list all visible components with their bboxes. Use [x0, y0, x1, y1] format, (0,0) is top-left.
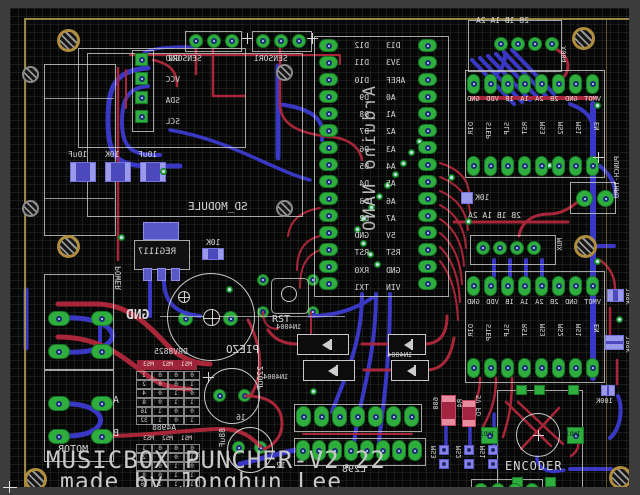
- resistor-value-label: 680: [433, 397, 440, 423]
- pad[interactable]: [467, 156, 480, 176]
- smd-resistor[interactable]: [202, 248, 224, 260]
- driver-pin-label: 1B: [505, 298, 513, 306]
- smd-resistor[interactable]: [461, 192, 473, 204]
- sensor1-pads[interactable]: [256, 34, 306, 48]
- pad[interactable]: [552, 276, 565, 296]
- table-cell: 0: [152, 398, 168, 407]
- pad[interactable]: [484, 276, 497, 296]
- pullup-value-label: 10K: [475, 194, 489, 202]
- nano-pin-label: A3: [386, 145, 414, 154]
- nano-pin-label: D10: [347, 76, 369, 85]
- driver-pin-label: DIR: [467, 122, 475, 154]
- gnd-label: GND: [126, 309, 149, 322]
- pad[interactable]: [467, 358, 480, 378]
- i2c-pin-label: VCC: [152, 75, 180, 84]
- nano-pin-label: D13: [386, 41, 414, 50]
- power-label: POWER: [115, 266, 123, 308]
- origin-cross-icon: [533, 430, 544, 441]
- driver1-output-labels: 2B 1B 1A 2A: [476, 17, 529, 25]
- nano-right-pin-labels: D133V3AREFA0A1A2A3A4A5A6A75VRSTGNDVIN: [386, 41, 414, 292]
- cap-value-label: 10uF: [68, 151, 87, 159]
- canvas-origin-cross-icon: [3, 481, 17, 493]
- pad[interactable]: [501, 276, 514, 296]
- driver2-logic-pads[interactable]: [467, 358, 599, 378]
- driver-pin-label: VMOT: [584, 298, 601, 306]
- nano-pin-label: A7: [386, 214, 414, 223]
- pad[interactable]: [552, 156, 565, 176]
- nano-pin-label: D12: [347, 41, 369, 50]
- driver-pin-label: SLP: [503, 324, 511, 356]
- pad[interactable]: [586, 358, 599, 378]
- origin-cross-icon: [593, 152, 604, 163]
- table-cell: 1: [184, 380, 200, 389]
- nano-left-pads[interactable]: [319, 39, 338, 290]
- pad[interactable]: [527, 241, 541, 255]
- pad[interactable]: [319, 39, 338, 52]
- pad[interactable]: [319, 56, 338, 69]
- drv8825-table-title: DRV8825: [154, 348, 188, 356]
- pad[interactable]: [418, 107, 437, 120]
- driver-pin-label: 1A: [520, 298, 528, 306]
- driver-pin-label: MS2: [557, 324, 565, 356]
- pad[interactable]: [350, 406, 365, 427]
- i2c-pad[interactable]: [135, 53, 148, 66]
- pad[interactable]: [274, 34, 288, 48]
- nano-right-pads[interactable]: [418, 39, 437, 290]
- mux-pads[interactable]: [476, 241, 541, 255]
- pad[interactable]: [535, 74, 548, 94]
- pad[interactable]: [319, 90, 338, 103]
- sensor2-label: SENSOR2: [168, 55, 202, 63]
- pad[interactable]: [518, 276, 531, 296]
- pad[interactable]: [91, 311, 113, 326]
- pad[interactable]: [467, 276, 480, 296]
- driver-pin-label: RST: [521, 324, 529, 356]
- origin-cross-icon: [203, 372, 214, 383]
- smd-resistor[interactable]: [441, 395, 456, 426]
- encoder-ind2-label: IND2: [480, 432, 494, 438]
- pad[interactable]: [418, 175, 437, 188]
- pad[interactable]: [597, 190, 614, 207]
- pad[interactable]: [207, 34, 221, 48]
- pad[interactable]: [189, 34, 203, 48]
- pad[interactable]: [518, 358, 531, 378]
- pad[interactable]: [494, 37, 508, 51]
- mounting-hole: [574, 235, 597, 258]
- diode[interactable]: [297, 334, 349, 355]
- canvas-margin-right: [629, 0, 640, 495]
- driver-pin-label: MS1: [575, 122, 583, 154]
- driver-pin-label: GND: [467, 95, 480, 103]
- driver-pin-label: MS3: [539, 122, 547, 154]
- pad[interactable]: [535, 276, 548, 296]
- table-header-cell: MS3: [139, 360, 158, 370]
- board-inner-edge-line: [606, 18, 607, 487]
- pad[interactable]: [332, 406, 347, 427]
- mounting-hole: [57, 29, 80, 52]
- piezo-label: PIEZO: [226, 344, 259, 355]
- pad[interactable]: [91, 344, 113, 359]
- via: [616, 316, 623, 323]
- pad[interactable]: [48, 311, 70, 326]
- jumper-pad[interactable]: [464, 445, 474, 455]
- via: [160, 168, 167, 175]
- driver1-logic-pin-labels: ENMS1MS2MS3RSTSLPSTEPDIR: [467, 122, 601, 154]
- nano-pin-label: RST: [386, 248, 414, 257]
- module-hole: [276, 200, 293, 217]
- i2c-pin-label: SDA: [152, 96, 180, 105]
- table-cell: 4: [136, 389, 152, 398]
- drill-hole: [178, 291, 190, 303]
- resistor-value-label: 10K: [206, 239, 220, 247]
- nano-pin-label: D11: [347, 58, 369, 67]
- jumper-pad[interactable]: [439, 445, 449, 455]
- jumper-pad[interactable]: [464, 459, 474, 469]
- pad[interactable]: [319, 243, 338, 256]
- pad[interactable]: [392, 440, 406, 461]
- pad[interactable]: [319, 226, 338, 239]
- jumper-label: MS1: [480, 446, 487, 470]
- driver1-power-pads[interactable]: [467, 74, 599, 94]
- motor-b-label: B: [113, 429, 119, 439]
- pad[interactable]: [535, 358, 548, 378]
- table-header-cell: MS1: [177, 434, 196, 444]
- board-credit: made by Jonghun Lee: [60, 471, 342, 487]
- nano-pin-label: AREF: [386, 76, 414, 85]
- driver-pin-label: 2B: [550, 95, 558, 103]
- nano-pin-label: A1: [386, 110, 414, 119]
- pad[interactable]: [48, 344, 70, 359]
- pad[interactable]: [48, 396, 70, 411]
- pad[interactable]: [319, 260, 338, 273]
- pad[interactable]: [418, 260, 437, 273]
- driver-pin-label: VDD: [486, 95, 499, 103]
- driver-pin-label: DIR: [467, 324, 475, 356]
- smd-resistor[interactable]: [605, 335, 624, 350]
- nano-pin-label: GND: [386, 266, 414, 275]
- pad[interactable]: [518, 156, 531, 176]
- regulator-leg: [157, 268, 166, 281]
- mux-label: MUX: [557, 238, 564, 264]
- jumper-label: MS3: [431, 446, 438, 470]
- table-cell: 2: [136, 380, 152, 389]
- origin-cross-icon: [307, 33, 318, 44]
- sd-module-label: SD_MODULE: [188, 201, 248, 212]
- canvas-margin-left: [0, 0, 10, 495]
- driver-pin-label: EN: [593, 324, 601, 356]
- pad[interactable]: [569, 156, 582, 176]
- table-header-cell: MS2: [158, 360, 177, 370]
- driver2-output-labels: 2B 1B 1A 2A: [468, 212, 521, 220]
- pad[interactable]: [576, 190, 593, 207]
- driver-pin-label: MS2: [557, 122, 565, 154]
- table-cell: 0: [184, 371, 200, 380]
- pcb-layout-screenshot: SD_MODULE GNDVCCSDASCL SENSOR2 SENSOR1 1…: [0, 0, 640, 495]
- pad[interactable]: [418, 209, 437, 222]
- cap-value-label: 10uF: [138, 151, 157, 159]
- pad[interactable]: [484, 156, 497, 176]
- pad[interactable]: [319, 175, 338, 188]
- pad[interactable]: [511, 37, 525, 51]
- pad[interactable]: [586, 74, 599, 94]
- pad[interactable]: [528, 37, 542, 51]
- via: [310, 388, 317, 395]
- table-header-cell: MS3: [139, 434, 158, 444]
- l298-pads-row1[interactable]: [296, 406, 419, 427]
- pad[interactable]: [586, 276, 599, 296]
- terminal-pads[interactable]: [48, 396, 113, 411]
- pad[interactable]: [319, 107, 338, 120]
- table-cell: 1: [168, 389, 184, 398]
- pad[interactable]: [319, 124, 338, 137]
- resistor-value-label: 100K: [596, 398, 613, 405]
- canvas-margin-top: [0, 0, 640, 8]
- nano-pin-label: 5V: [386, 231, 414, 240]
- diode[interactable]: [303, 360, 355, 381]
- table-cell: 32: [136, 416, 152, 425]
- module-hole: [22, 66, 39, 83]
- terminal-pads[interactable]: [48, 429, 113, 444]
- resistor-name-label: R4: [457, 399, 464, 415]
- jumper-pad[interactable]: [488, 445, 498, 455]
- driver2-power-pin-labels: VMOTGND2B2A1A1BVDDGND: [467, 298, 601, 306]
- table-header-cell: MS1: [177, 360, 196, 370]
- i2c-pin-label: SCL: [152, 117, 180, 126]
- driver1-power-pin-labels: VMOTGND2B2A1A1BVDDGND: [467, 95, 601, 103]
- reset-button-plunger: [281, 286, 297, 302]
- i2c-pad[interactable]: [135, 110, 148, 123]
- driver-pin-label: GND: [565, 298, 578, 306]
- table-cell: 1: [184, 416, 200, 425]
- pad[interactable]: [319, 209, 338, 222]
- nano-pin-label: A5: [386, 179, 414, 188]
- pad[interactable]: [484, 74, 497, 94]
- pad[interactable]: [501, 74, 514, 94]
- pad[interactable]: [418, 158, 437, 171]
- via: [118, 234, 125, 241]
- driver-pin-label: MS1: [575, 324, 583, 356]
- table-cell: 0: [184, 407, 200, 416]
- cad-drawing-area[interactable]: SD_MODULE GNDVCCSDASCL SENSOR2 SENSOR1 1…: [10, 8, 629, 487]
- drv8825-table-header: MS1MS2MS3: [138, 360, 196, 370]
- driver-pin-label: EN: [593, 122, 601, 154]
- diode-value-label: 1N4004: [387, 352, 412, 359]
- table-cell: 0: [184, 389, 200, 398]
- nano-pin-label: A0: [386, 93, 414, 102]
- table-cell: 0: [152, 389, 168, 398]
- encoder-pin-pad[interactable]: [516, 385, 527, 395]
- table-cell: 16: [136, 407, 152, 416]
- regulator-leg: [143, 268, 152, 281]
- jumper-label: MS2: [456, 446, 463, 470]
- diode[interactable]: [391, 360, 429, 381]
- driver2-logic-pin-labels: ENMS1MS2MS3RSTSLPSTEPDIR: [467, 324, 601, 356]
- resistor-value-label: 5V FD: [476, 395, 483, 427]
- i2c-pin-labels: GNDVCCSDASCL: [152, 54, 180, 126]
- via: [226, 286, 233, 293]
- table-cell: 1: [152, 407, 168, 416]
- pad[interactable]: [314, 406, 329, 427]
- motor-a-label: A: [113, 396, 119, 406]
- nano-pin-label: A6: [386, 197, 414, 206]
- smd-resistor[interactable]: [607, 289, 624, 302]
- via: [448, 174, 455, 181]
- driver-pin-label: STEP: [485, 122, 493, 154]
- pad[interactable]: [319, 158, 338, 171]
- driver-pin-label: 1B: [505, 95, 513, 103]
- cap-value-label: 220uF: [257, 366, 265, 406]
- pad[interactable]: [552, 74, 565, 94]
- nano-pin-label: A2: [386, 127, 414, 136]
- mounting-hole: [572, 27, 595, 50]
- encoder-pin-pad[interactable]: [568, 385, 579, 395]
- piezo-drill-hole: [203, 309, 220, 326]
- pad[interactable]: [256, 34, 270, 48]
- smd-resistor[interactable]: [462, 400, 476, 427]
- driver-pin-label: 2B: [550, 298, 558, 306]
- pad[interactable]: [518, 74, 531, 94]
- nano-pin-label: VIN: [386, 283, 414, 292]
- driver-pin-label: SLP: [503, 122, 511, 154]
- smd-resistor[interactable]: [601, 385, 615, 396]
- jumper-pad[interactable]: [439, 459, 449, 469]
- driver1-logic-pads[interactable]: [467, 156, 599, 176]
- x004-label: X004: [561, 46, 568, 70]
- table-cell: 1: [136, 371, 152, 380]
- pad[interactable]: [569, 358, 582, 378]
- regulator-label: REG1117: [138, 248, 176, 257]
- driver-pin-label: 1A: [520, 95, 528, 103]
- driver-pin-label: GND: [565, 95, 578, 103]
- driver2-power-pads[interactable]: [467, 276, 599, 296]
- pad[interactable]: [319, 141, 338, 154]
- diode-value-label: 1N4004: [263, 374, 288, 381]
- nano-pin-label: A4: [386, 162, 414, 171]
- pad[interactable]: [319, 192, 338, 205]
- table-cell: 1: [168, 398, 184, 407]
- pad[interactable]: [418, 56, 437, 69]
- encoder-pin-pad[interactable]: [534, 385, 545, 395]
- diode-value-label: 1N4004: [276, 324, 301, 331]
- regulator-leg: [171, 268, 180, 281]
- a4988-table-title: A4988: [152, 424, 176, 432]
- sd-module-body-outline[interactable]: [87, 53, 303, 217]
- pad[interactable]: [319, 277, 338, 290]
- encoder-label: ENCODER: [505, 460, 563, 472]
- table-header-cell: MS2: [158, 434, 177, 444]
- table-cell: 0: [152, 380, 168, 389]
- punch-pads[interactable]: [576, 190, 614, 207]
- pad[interactable]: [545, 37, 559, 51]
- pad[interactable]: [569, 74, 582, 94]
- pad[interactable]: [91, 429, 113, 444]
- pad[interactable]: [319, 73, 338, 86]
- i2c-pad[interactable]: [135, 91, 148, 104]
- pad[interactable]: [418, 277, 437, 290]
- table-cell: 0: [168, 407, 184, 416]
- encoder-ind1-label: IND1: [566, 432, 580, 438]
- driver-pin-label: VMOT: [584, 95, 601, 103]
- terminal-pads[interactable]: [48, 311, 113, 326]
- pad[interactable]: [535, 156, 548, 176]
- driver-pin-label: VDD: [486, 298, 499, 306]
- encoder-pin-pad[interactable]: [545, 477, 556, 487]
- x004-pads[interactable]: [494, 37, 559, 51]
- origin-cross-icon: [242, 33, 253, 44]
- module-hole: [276, 64, 293, 81]
- pad[interactable]: [404, 406, 419, 427]
- pad[interactable]: [408, 440, 422, 461]
- via: [594, 102, 601, 109]
- pad[interactable]: [418, 243, 437, 256]
- pad[interactable]: [501, 358, 514, 378]
- a4988-table-header: MS1MS2MS3: [138, 434, 196, 444]
- mounting-hole: [57, 235, 80, 258]
- pad[interactable]: [48, 429, 70, 444]
- driver-pin-label: 2A: [535, 95, 543, 103]
- mounting-hole: [24, 468, 47, 487]
- pad[interactable]: [292, 34, 306, 48]
- res-value-label: 10K: [105, 151, 119, 159]
- driver-pin-label: STEP: [485, 324, 493, 356]
- jumper-pad[interactable]: [488, 459, 498, 469]
- pad[interactable]: [91, 396, 113, 411]
- driver-pin-label: GND: [467, 298, 480, 306]
- smd-capacitor[interactable]: [105, 162, 131, 182]
- nano-pin-label: 3V3: [386, 58, 414, 67]
- table-cell: 0: [168, 371, 184, 380]
- pad[interactable]: [476, 241, 490, 255]
- pad[interactable]: [418, 192, 437, 205]
- driver-pin-label: RST: [521, 122, 529, 154]
- mounting-hole: [609, 466, 629, 487]
- pad[interactable]: [386, 406, 401, 427]
- pad[interactable]: [418, 73, 437, 86]
- terminal-pads[interactable]: [48, 344, 113, 359]
- pad[interactable]: [225, 34, 239, 48]
- table-cell: 1: [184, 398, 200, 407]
- driver-pin-label: MS3: [539, 324, 547, 356]
- pad[interactable]: [552, 358, 565, 378]
- pad[interactable]: [418, 124, 437, 137]
- canvas-margin-bottom: [0, 487, 640, 495]
- table-cell: 8: [136, 398, 152, 407]
- drv8825-table-cells: 00011002010411080011610132: [136, 371, 200, 425]
- pad[interactable]: [484, 358, 497, 378]
- table-cell: 0: [168, 380, 184, 389]
- pad[interactable]: [418, 141, 437, 154]
- driver-pin-label: 2A: [535, 298, 543, 306]
- sensor1-label: SENSOR1: [254, 55, 288, 63]
- pad[interactable]: [467, 74, 480, 94]
- pad[interactable]: [493, 241, 507, 255]
- nano-label: Arduino NANO: [362, 86, 379, 286]
- pad[interactable]: [418, 39, 437, 52]
- pad[interactable]: [510, 241, 524, 255]
- regulator-tab-pad[interactable]: [143, 222, 179, 240]
- table-cell: 0: [152, 371, 168, 380]
- pad[interactable]: [569, 276, 582, 296]
- pad[interactable]: [501, 156, 514, 176]
- pad[interactable]: [418, 90, 437, 103]
- i2c-pad[interactable]: [135, 72, 148, 85]
- pad[interactable]: [296, 406, 311, 427]
- pad[interactable]: [368, 406, 383, 427]
- pad[interactable]: [418, 226, 437, 239]
- cap-rating-label: 16: [236, 414, 246, 422]
- smd-capacitor[interactable]: [70, 162, 96, 182]
- sensor2-pads[interactable]: [189, 34, 239, 48]
